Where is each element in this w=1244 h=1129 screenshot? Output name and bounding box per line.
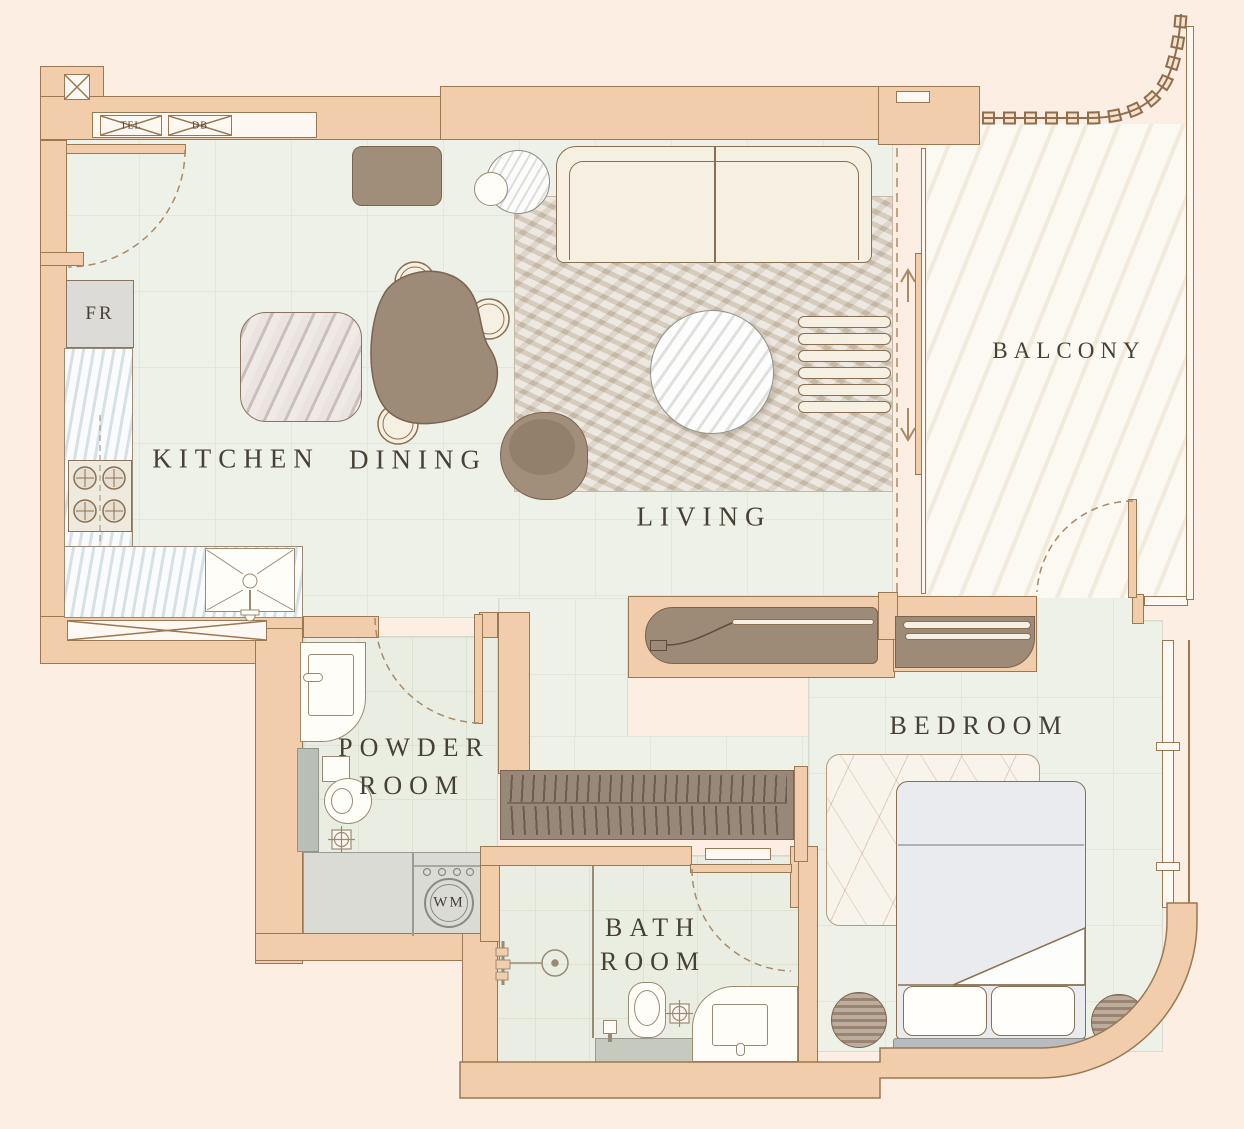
tv-panel [732,619,874,625]
bed-pillow-left [903,986,987,1036]
wall-bath-right [798,846,818,1063]
wall-left [40,140,67,618]
label-dining: DINING [349,445,487,476]
bath-shower-divider [592,866,594,1038]
coffee-table [650,310,774,434]
side-table-small [474,172,508,206]
wall-hall-left [498,612,530,774]
dresser-slat-1 [903,621,1031,629]
label-db: DB [192,121,208,132]
label-washer: WM [433,895,465,912]
laundry-divider [412,852,414,936]
bath-door-shelf [705,848,771,860]
powder-ledge [297,748,319,852]
bath-faucet [736,1043,745,1056]
media-box [650,640,667,651]
sofa-divider [714,147,716,262]
label-bath-line2: ROOM [600,947,706,977]
label-bath-line1: BATH [605,913,701,943]
label-kitchen: KITCHEN [152,444,319,475]
entry-bench [352,146,442,206]
sofa [556,146,872,263]
wardrobe [500,770,794,840]
column-top-left [64,74,90,100]
wardrobe-hangers-top [507,775,787,804]
armchair-cushion [509,419,575,475]
bedroom-window-mullion-2 [1156,862,1180,871]
bedroom-window-mullion-1 [1156,742,1180,751]
duct-kitchen-bottom [67,620,267,641]
bath-sink [712,1004,768,1046]
wall-powder-top [303,616,379,638]
label-powder-line2: ROOM [359,771,465,801]
dining-island [240,312,362,422]
window-top-right-sliver [1144,596,1188,606]
label-fridge: FR [85,303,114,325]
wall-powder-left [255,628,303,964]
bath-toilet-bowl [634,990,660,1026]
stove [68,460,132,532]
sliding-door-glass [921,148,926,594]
floor-balcony-doorway-patch [1037,596,1132,622]
shower-window-line [508,1078,604,1079]
balcony-railing [982,14,1181,118]
entry-door-leaf [66,144,186,154]
armchair [500,412,588,500]
nightstand-left [831,992,887,1048]
nightstand-right [1091,994,1147,1050]
shower-window [508,1066,604,1092]
balcony-door-leaf [1128,499,1137,598]
wall-balcony-door-stub [1132,594,1144,624]
balcony-glass-right [1186,26,1194,600]
slatted-bench [798,316,891,413]
powder-door-leaf [474,614,483,724]
bed-pillow-right [991,986,1075,1036]
label-powder-line1: POWDER [338,733,490,763]
label-living: LIVING [637,502,772,533]
powder-sink [308,654,354,716]
sliding-door-arrows [901,270,915,440]
label-balcony: BALCONY [992,338,1145,364]
wall-shower-left [462,933,498,1066]
wardrobe-hangers-bottom [507,806,787,835]
label-bedroom: BEDROOM [889,711,1068,741]
bath-mixer [603,1020,617,1034]
wall-top-living [440,86,880,140]
dresser-slat-2 [905,633,1031,640]
balcony-block-notch [896,91,930,103]
kitchen-sink [205,548,295,612]
powder-faucet [303,673,323,682]
bath-door-leaf [690,864,792,873]
label-tel: TEL [120,121,141,132]
floor-plan: KITCHEN DINING LIVING BALCONY BEDROOM PO… [0,0,1244,1129]
bedroom-window-outer-line [1188,640,1190,908]
bed-headboard [893,1038,1089,1053]
bath-mixer-foot [608,1034,612,1042]
wall-bath-top [480,846,692,866]
wall-entry-door-stub [40,252,84,266]
wall-wardrobe-stub [794,766,808,862]
tv-console [645,607,878,664]
powder-toilet-bowl [331,788,353,814]
